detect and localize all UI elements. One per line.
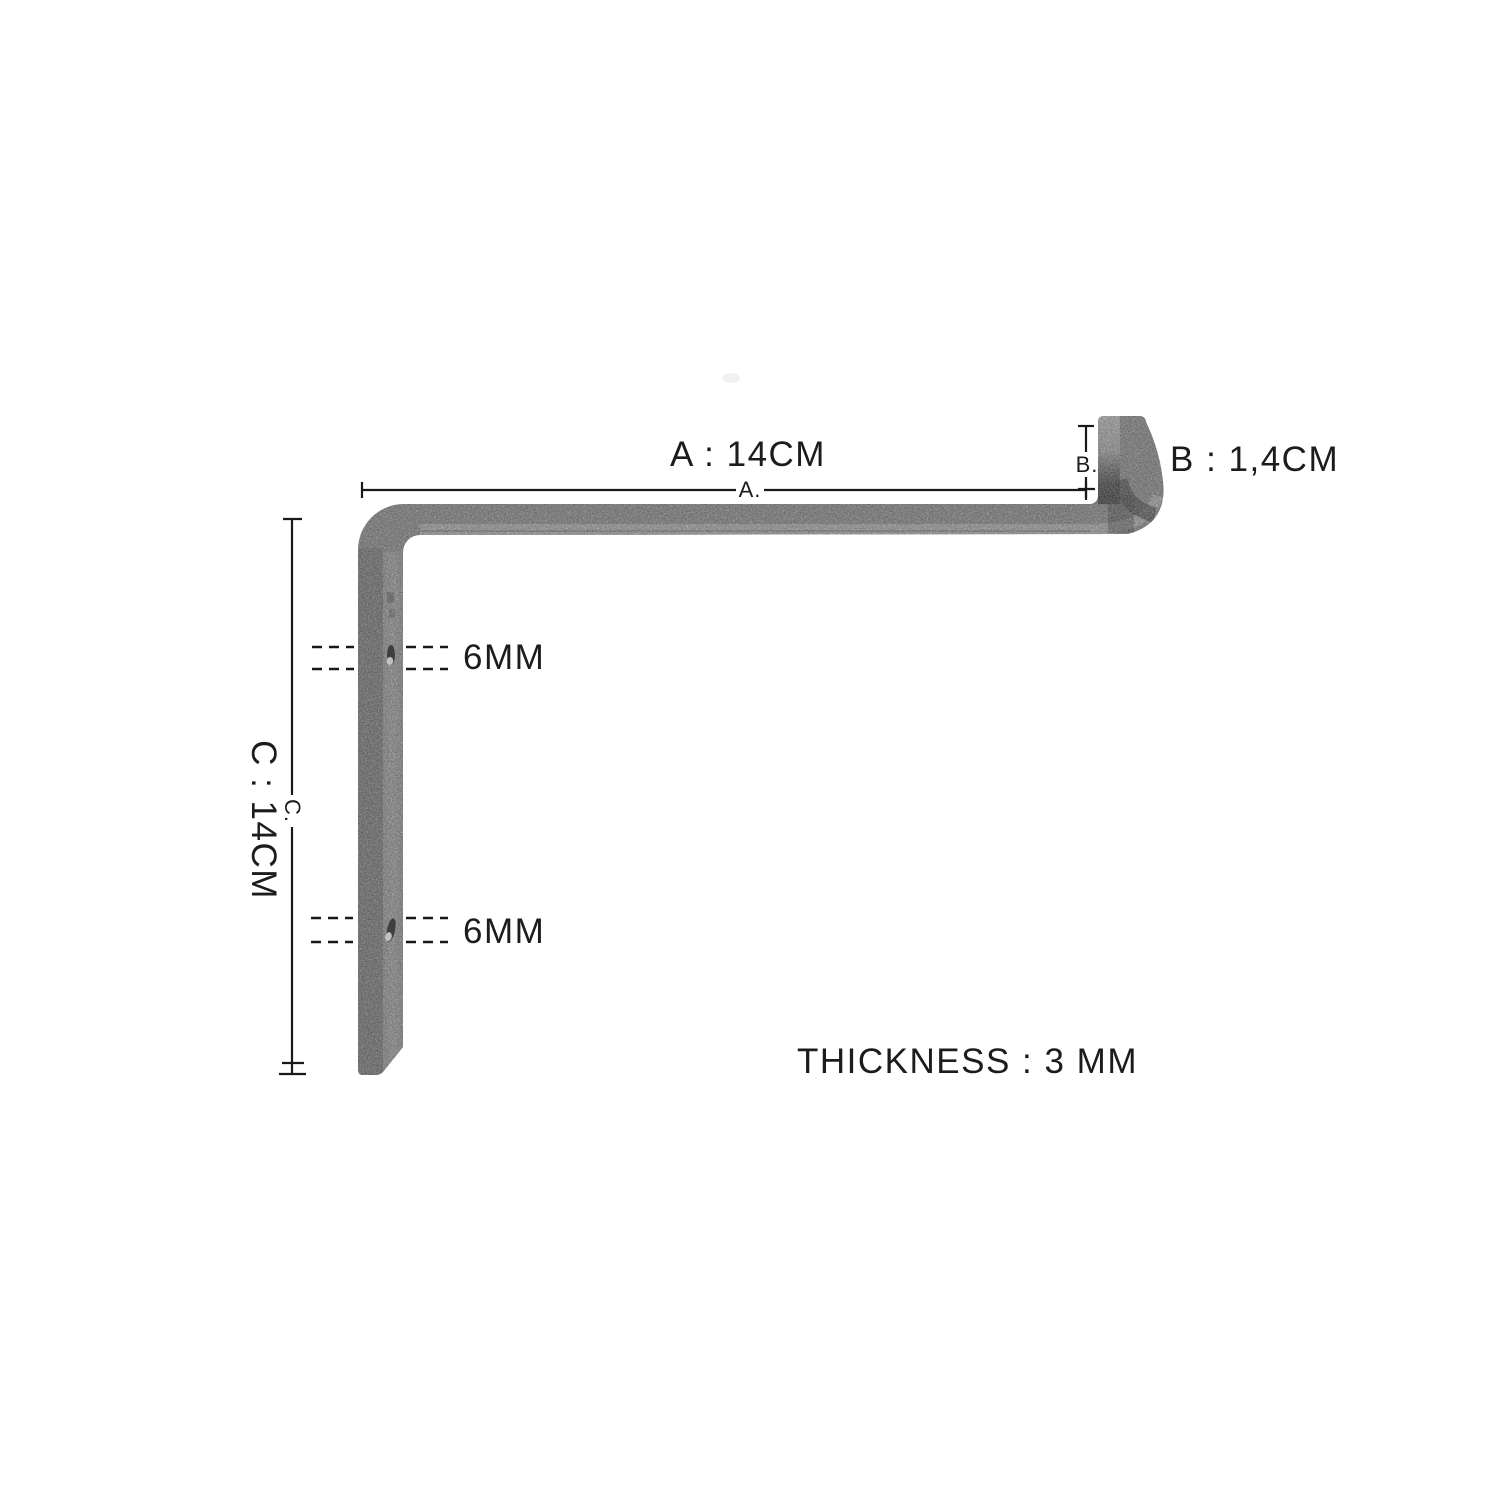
thickness-label: THICKNESS : 3 MM [797,1042,1138,1081]
dim-a-line-label: A. [739,477,762,502]
hole-bottom-label: 6MM [463,912,545,951]
texture-light-speckle [350,405,1175,1085]
dimension-a: A. A : 14CM [362,435,1086,502]
background-smudge [722,373,740,383]
bracket-dimension-diagram: A. A : 14CM B. B : 1,4CM C. C : 14CM [0,0,1500,1500]
dimension-c: C. C : 14CM [244,519,306,1074]
dim-a-value-label: A : 14CM [670,435,826,474]
hole-callout-bottom: 6MM [311,912,545,951]
hole-callout-top: 6MM [312,638,545,677]
dim-b-line-label: B. [1076,452,1099,477]
hole-top-label: 6MM [463,638,545,677]
diagram-canvas: A. A : 14CM B. B : 1,4CM C. C : 14CM [0,0,1500,1500]
bracket-illustration [350,405,1175,1085]
dim-b-value-label: B : 1,4CM [1170,440,1339,479]
dim-c-value-label: C : 14CM [244,740,283,900]
